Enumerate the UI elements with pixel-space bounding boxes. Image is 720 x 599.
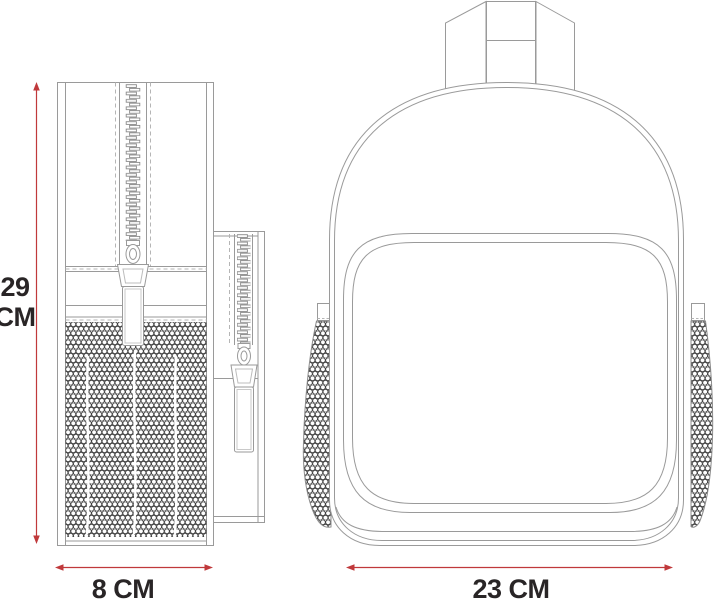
top-handle: [446, 2, 575, 96]
backpack-size-diagram: 29 CM 8 CM 23 CM: [0, 0, 720, 599]
side-pouch: [213, 232, 265, 523]
diagram-drawing: [0, 0, 720, 599]
side-width-dimension-label: 8 CM: [48, 574, 198, 599]
height-unit: CM: [0, 302, 37, 332]
front-width-dimension-label: 23 CM: [436, 574, 586, 599]
front-left-mesh-pocket: [303, 304, 331, 528]
height-dimension-label: 29 CM: [0, 272, 37, 332]
front-pocket: [344, 234, 677, 513]
height-value: 29: [0, 272, 37, 302]
side-view: [58, 83, 265, 546]
front-right-mesh-pocket: [691, 304, 713, 528]
front-view: [303, 2, 712, 546]
